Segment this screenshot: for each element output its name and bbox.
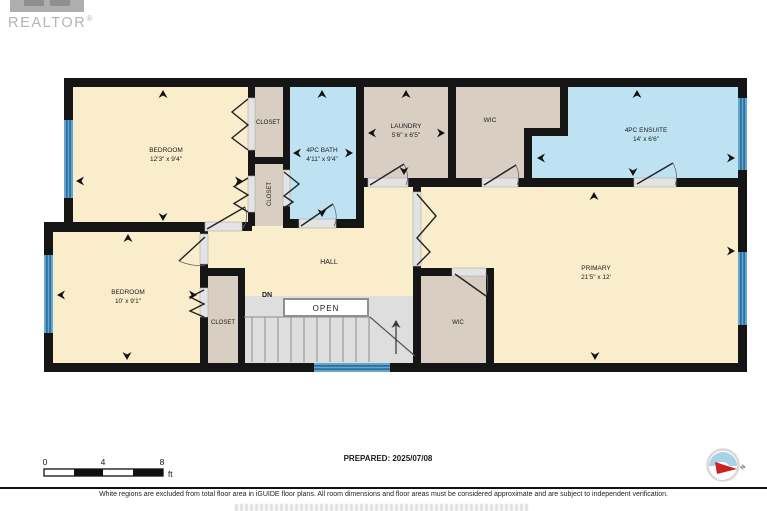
room-label: CLOSET xyxy=(267,182,273,206)
room-label: WIC xyxy=(484,117,497,124)
window xyxy=(738,98,747,170)
stair-dn-label: DN xyxy=(262,292,272,299)
scale-tick-8: 8 xyxy=(160,457,165,467)
room-label: PRIMARY xyxy=(581,265,611,272)
scale-tick-4: 4 xyxy=(101,457,106,467)
room-label: BEDROOM xyxy=(149,147,183,154)
scale-tick-0: 0 xyxy=(43,457,48,467)
room-dims: 10' x 9'1" xyxy=(115,298,142,305)
window xyxy=(44,255,53,333)
room-label: 4PC BATH xyxy=(306,147,338,154)
footer-divider-line xyxy=(0,487,767,489)
compass-north-label: N xyxy=(740,464,747,471)
room-dims: 4'11" x 9'4" xyxy=(306,156,338,163)
room-dims: 14' x 6'6" xyxy=(633,136,660,143)
room-label: LAUNDRY xyxy=(391,123,423,130)
floor-plan-page: REALTOR® xyxy=(0,0,767,511)
window xyxy=(314,363,390,372)
room-bedroom-1 xyxy=(72,82,252,228)
disclaimer-text: White regions are excluded from total fl… xyxy=(0,491,767,498)
room-dims: 12'3" x 9'4" xyxy=(150,156,183,163)
room-label: CLOSET xyxy=(211,320,235,326)
scale-bar: 0 4 8 ft xyxy=(43,457,174,479)
room-dims: 5'6" x 6'5" xyxy=(392,132,421,139)
compass-icon: N xyxy=(708,450,748,481)
room-label: 4PC ENSUITE xyxy=(625,127,668,134)
fineprint-blurred-text xyxy=(235,504,530,511)
room-dims: 21'5" x 12' xyxy=(581,274,611,281)
room-label: WIC xyxy=(452,320,464,326)
stair-open-label: OPEN xyxy=(313,304,340,313)
room-label: CLOSET xyxy=(256,120,280,126)
prepared-date: PREPARED: 2025/07/08 xyxy=(288,454,488,463)
window xyxy=(64,120,73,198)
room-label: HALL xyxy=(320,259,338,266)
floor-plan-drawing: OPEN DN xyxy=(0,0,767,511)
room-label: BEDROOM xyxy=(111,289,145,296)
window xyxy=(738,252,747,325)
scale-unit: ft xyxy=(168,470,173,479)
room-bath xyxy=(285,82,361,228)
